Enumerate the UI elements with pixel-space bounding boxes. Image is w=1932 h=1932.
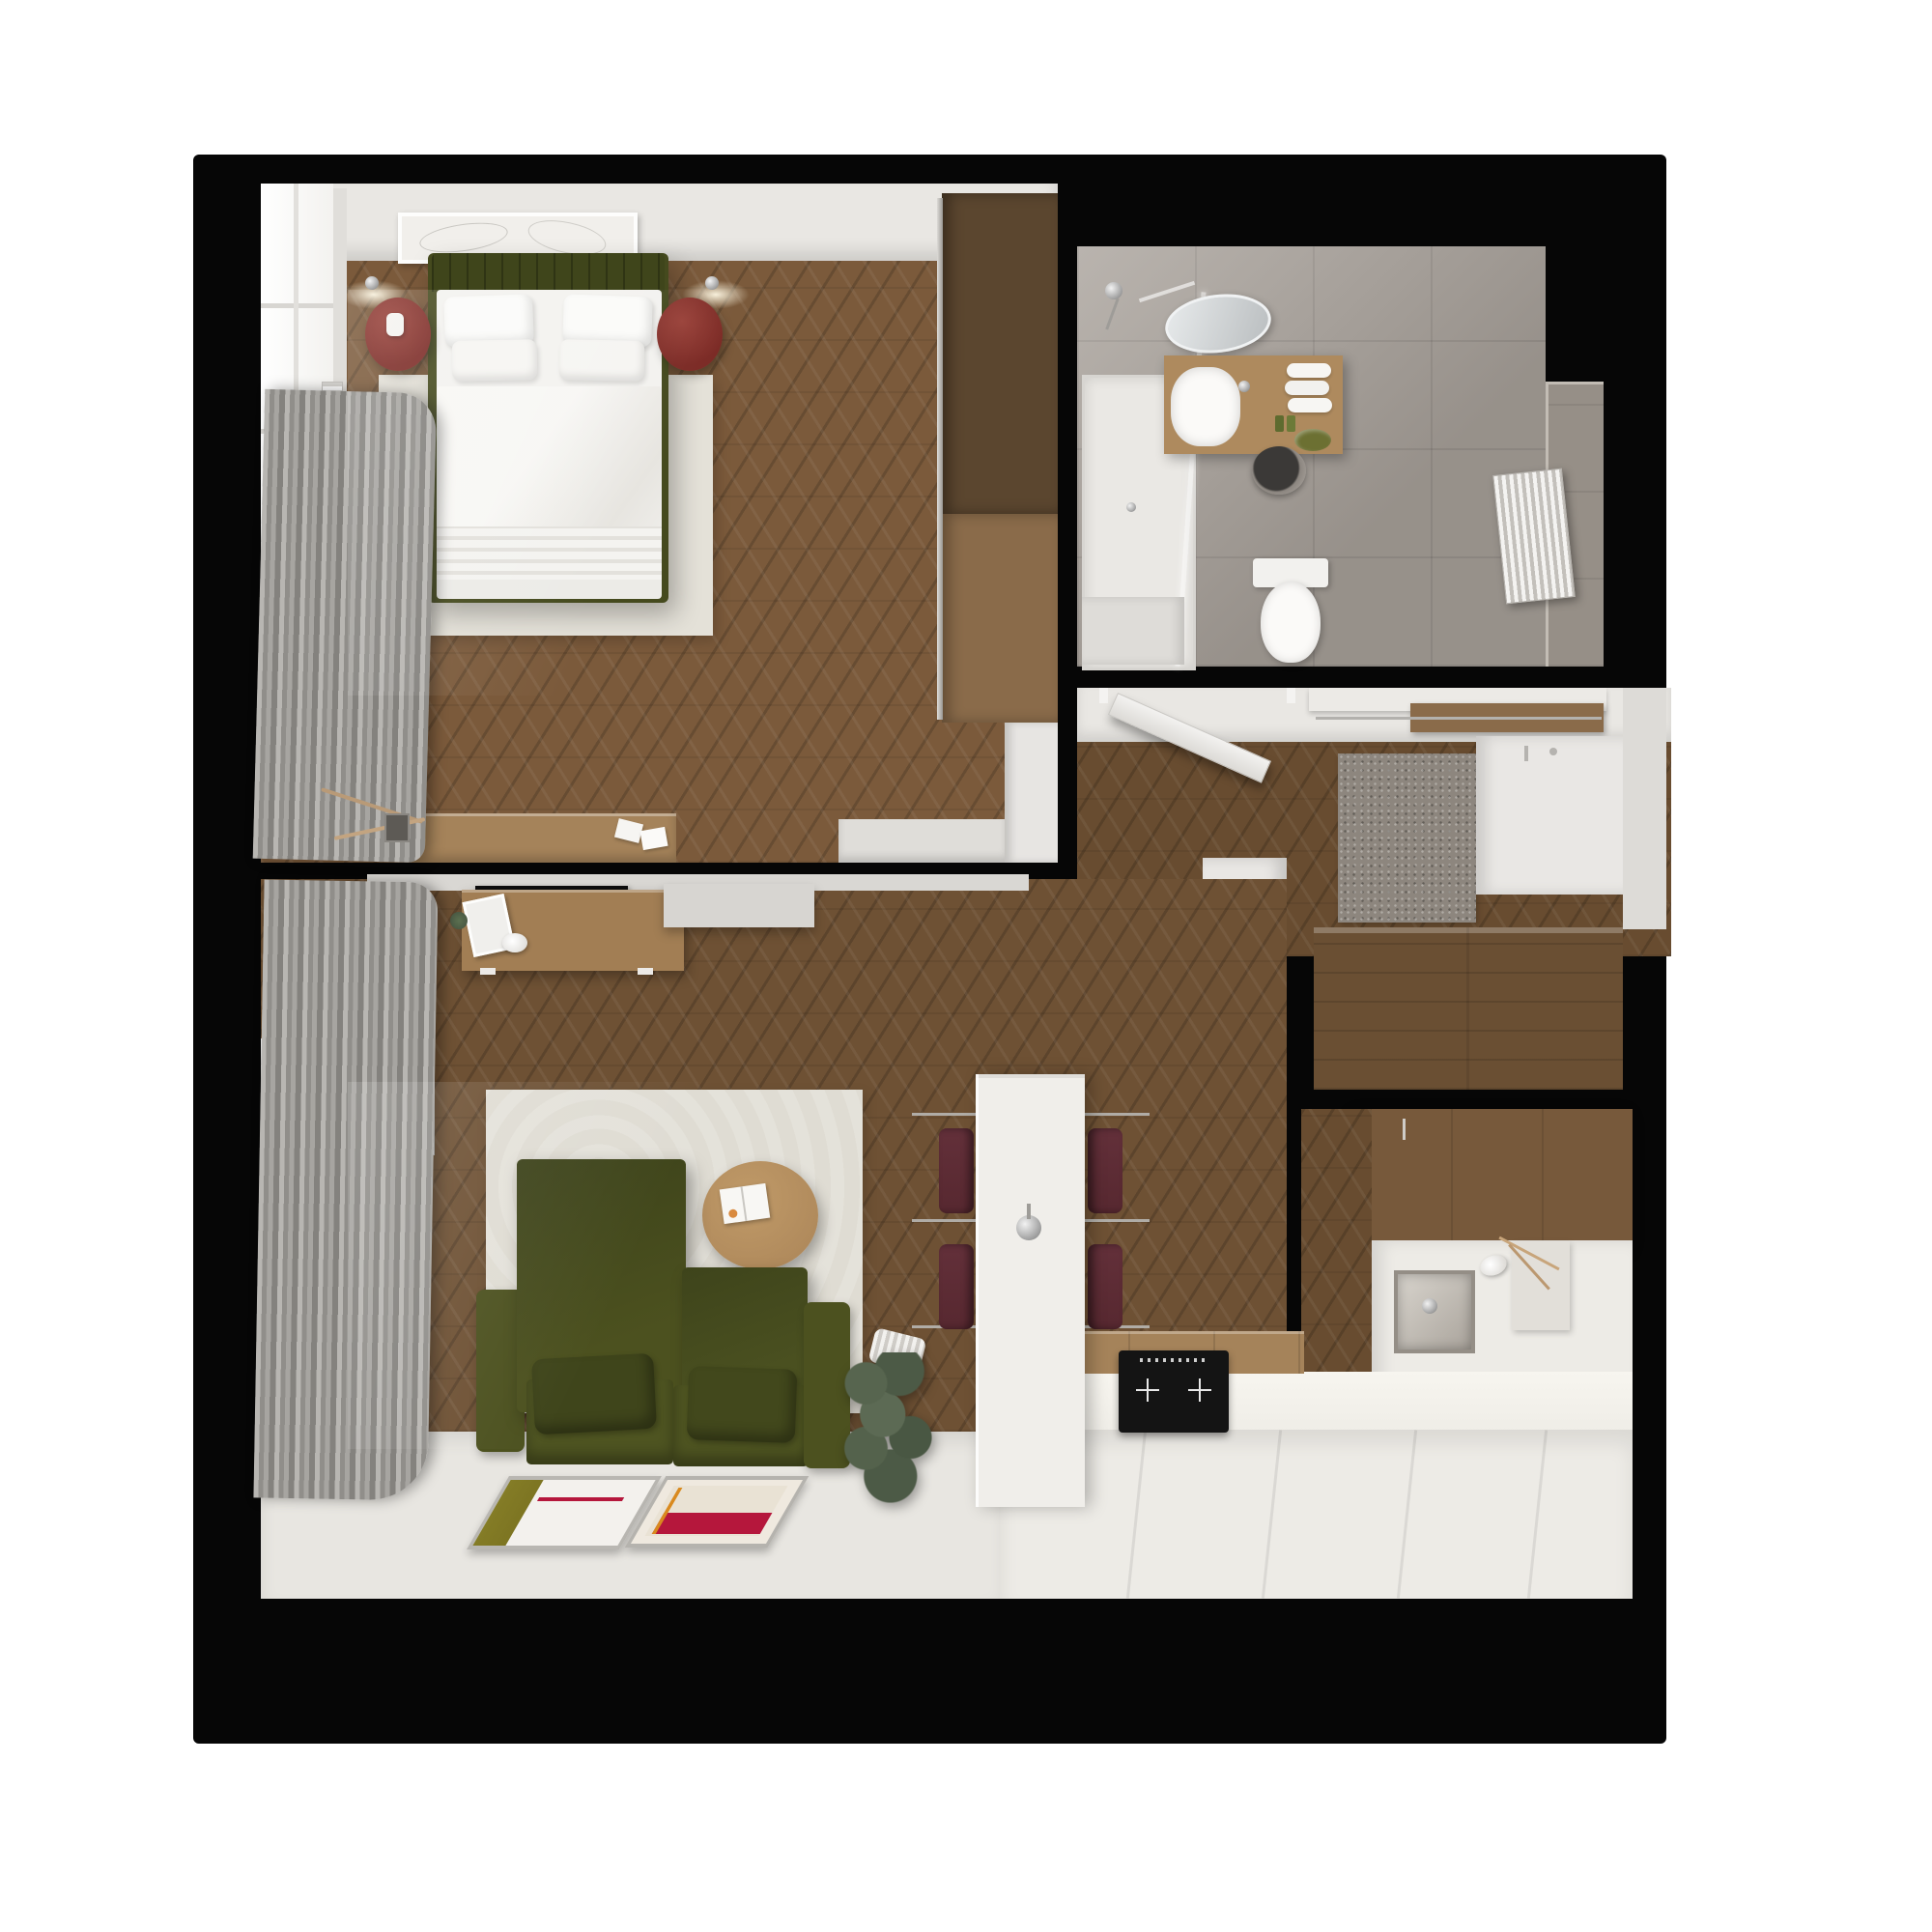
- cooktop-burner-cross: [1199, 1378, 1201, 1402]
- bed-foot-sheet: [437, 580, 662, 599]
- living-curtains: [253, 879, 438, 1500]
- counter-seam: [1262, 1430, 1282, 1598]
- bar-stool: [939, 1244, 974, 1329]
- island-faucet-spout: [1027, 1204, 1031, 1219]
- green-bottles: [1275, 415, 1284, 432]
- rolled-towel: [1288, 398, 1332, 412]
- cooktop-control-dots: [1140, 1358, 1207, 1362]
- magazine-dot: [728, 1208, 738, 1218]
- stool-footrest-bar: [1080, 1219, 1150, 1222]
- desk-plant: [450, 912, 468, 929]
- entry-door-frame-post: [1099, 688, 1108, 703]
- sink-drain: [1422, 1298, 1437, 1314]
- bar-stool: [1088, 1244, 1122, 1329]
- magazine-spine: [741, 1186, 748, 1221]
- desk-foot: [480, 968, 496, 975]
- cooktop-burner-cross: [1147, 1378, 1149, 1402]
- desk-foot: [638, 968, 653, 975]
- stool-footrest-bar: [1080, 1113, 1150, 1116]
- tall-cabinet-dark: [1314, 927, 1623, 1090]
- wardrobe-lower: [942, 514, 1058, 723]
- apartment-floor-plan-render: [0, 0, 1932, 1932]
- kitchen-island: [976, 1074, 1085, 1507]
- desk-speaker: [502, 933, 527, 952]
- shower-drain: [1126, 502, 1136, 512]
- floor-plant: [833, 1352, 944, 1507]
- vanity-sink: [1171, 367, 1240, 446]
- bathroom-radiator: [1492, 469, 1576, 605]
- counter-seam: [1126, 1430, 1147, 1598]
- nightstand-right: [657, 298, 723, 371]
- entry-closet: [1476, 736, 1625, 895]
- toilet-bowl: [1261, 582, 1321, 663]
- counter-seam: [1397, 1430, 1417, 1598]
- induction-cooktop: [1119, 1350, 1229, 1433]
- sofa-pillow-left: [531, 1353, 657, 1435]
- entry-closet-handle: [1549, 748, 1557, 755]
- kitchen-counter-bottom: [1000, 1430, 1633, 1599]
- bedroom-white-bench: [838, 819, 1007, 863]
- bed-pillow-front: [452, 339, 538, 382]
- bed-blanket-folds: [437, 526, 662, 582]
- green-soap-dish: [1294, 429, 1331, 451]
- bed-headboard: [432, 253, 665, 292]
- wall-art-sketch-lines: [417, 218, 509, 258]
- entry-doormat: [1338, 753, 1476, 923]
- entry-closet-handle: [1524, 746, 1528, 761]
- poster-crimson-line: [537, 1497, 624, 1501]
- sink-faucet: [1238, 381, 1250, 392]
- wall-sconce-right: [705, 276, 719, 290]
- wardrobe-upper: [942, 193, 1058, 514]
- kitchen-glow-strip: [1000, 1372, 1633, 1432]
- counter-seam: [1527, 1430, 1548, 1598]
- washing-machine-door: [1252, 446, 1306, 495]
- open-magazine: [720, 1183, 771, 1224]
- shower-head: [1105, 282, 1122, 299]
- bedroom-curtains: [253, 389, 438, 863]
- upper-wall-cabinets: [1360, 1109, 1633, 1240]
- rolled-towel: [1287, 363, 1331, 378]
- sofa-pillow-right: [687, 1366, 798, 1443]
- rolled-towel: [1285, 381, 1329, 395]
- bathroom-door-panel: [1082, 597, 1184, 665]
- bar-stool: [939, 1128, 974, 1213]
- floating-cabinet-white: [664, 884, 814, 927]
- bar-stool: [1088, 1128, 1122, 1213]
- cabinet-handle: [1403, 1119, 1406, 1140]
- cabinet-seam: [1466, 927, 1469, 1090]
- wardrobe-side-white-column: [1005, 723, 1058, 863]
- entry-door-frame-post: [1287, 688, 1295, 703]
- coat-rack-rail: [1316, 717, 1602, 720]
- driftwood-vase: [384, 813, 410, 842]
- stool-footrest-bar: [912, 1113, 981, 1116]
- nightstand-lamp: [386, 313, 404, 336]
- green-bottles: [1287, 415, 1295, 432]
- entry-corner-wall: [1623, 688, 1666, 929]
- wall-sconce-left: [365, 276, 379, 290]
- stool-footrest-bar: [912, 1219, 981, 1222]
- poster-crimson-band: [652, 1513, 773, 1534]
- wardrobe-chrome-rail: [937, 198, 943, 720]
- bed-pillow-front: [559, 339, 645, 382]
